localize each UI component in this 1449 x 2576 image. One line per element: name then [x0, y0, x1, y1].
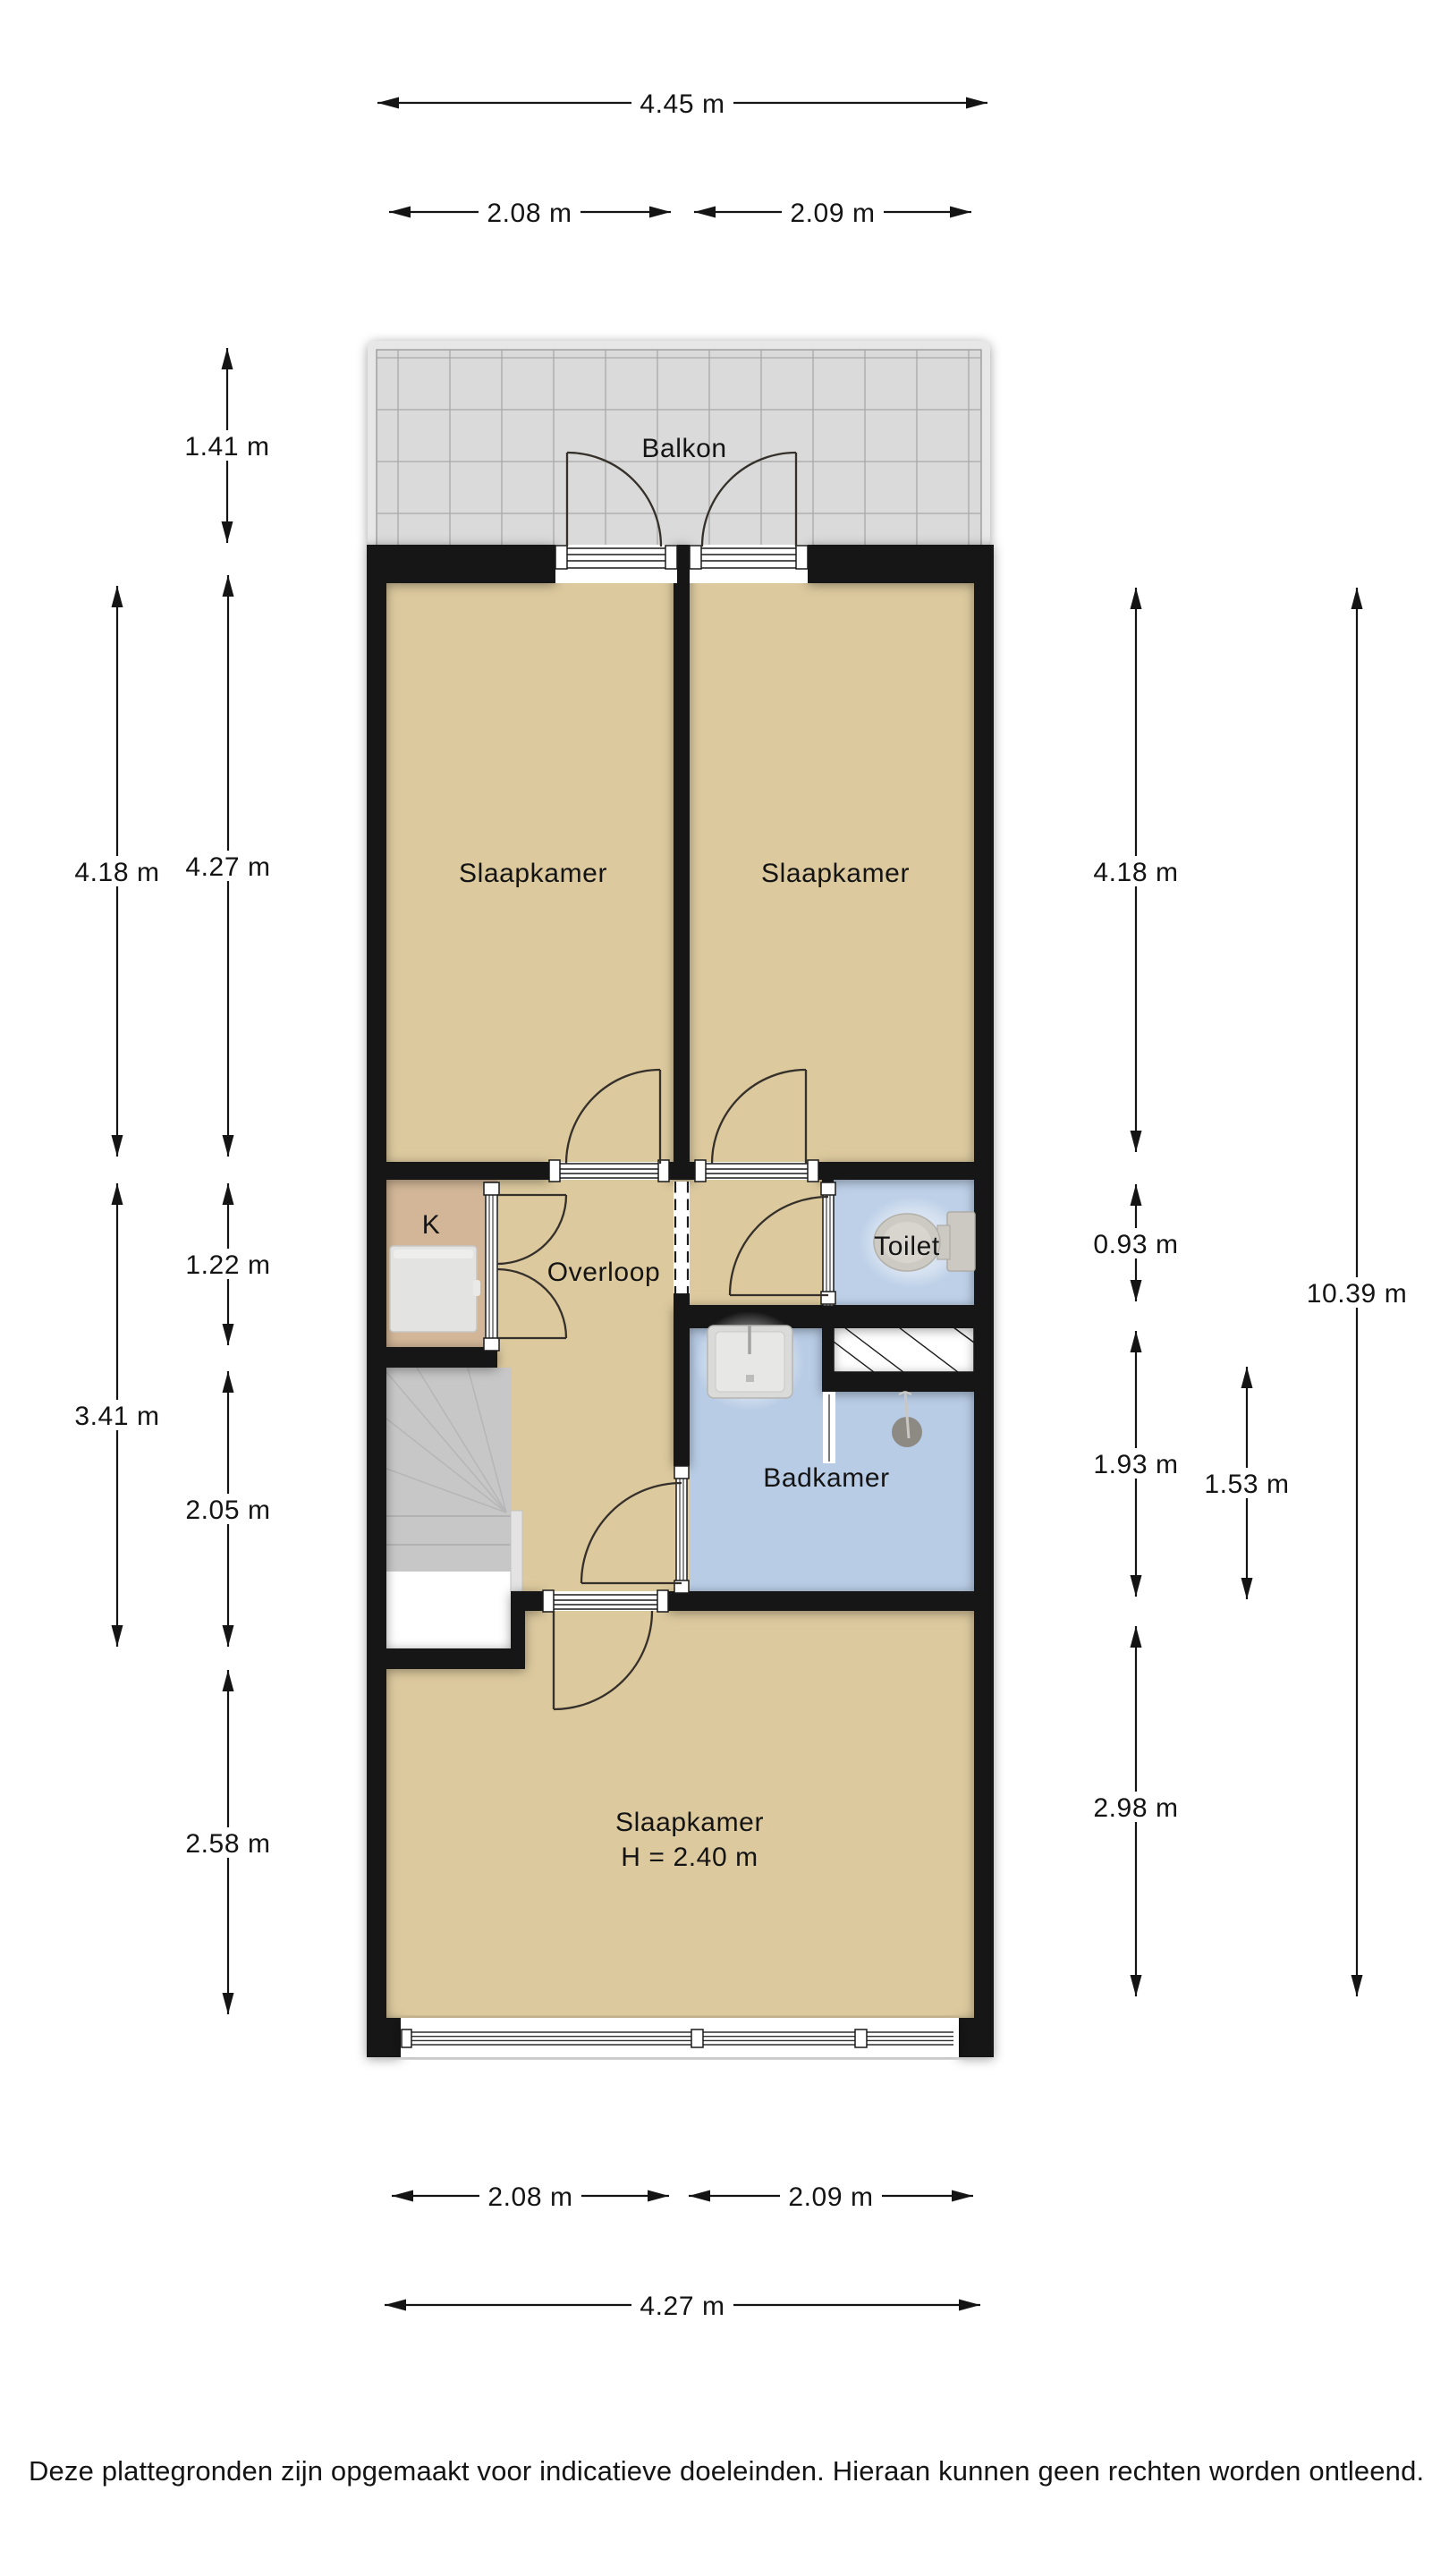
svg-text:2.08 m: 2.08 m [487, 199, 572, 228]
svg-text:K: K [422, 1210, 441, 1240]
svg-text:4.27 m: 4.27 m [640, 2292, 724, 2321]
svg-text:Overloop: Overloop [547, 1258, 661, 1287]
svg-text:3.41 m: 3.41 m [74, 1402, 159, 1431]
svg-text:2.09 m: 2.09 m [790, 199, 875, 228]
svg-text:4.18 m: 4.18 m [1093, 858, 1178, 887]
svg-text:Deze plattegronden zijn opgema: Deze plattegronden zijn opgemaakt voor i… [29, 2455, 1424, 2487]
svg-text:H = 2.40 m: H = 2.40 m [621, 1843, 758, 1872]
svg-text:4.18 m: 4.18 m [74, 858, 159, 887]
svg-text:Slaapkamer: Slaapkamer [761, 859, 910, 888]
svg-text:Slaapkamer: Slaapkamer [459, 859, 607, 888]
svg-text:Badkamer: Badkamer [763, 1463, 890, 1493]
svg-text:2.58 m: 2.58 m [185, 1829, 270, 1859]
svg-text:2.98 m: 2.98 m [1093, 1793, 1178, 1823]
svg-text:Slaapkamer: Slaapkamer [615, 1808, 764, 1837]
svg-text:4.45 m: 4.45 m [640, 89, 724, 119]
svg-text:2.05 m: 2.05 m [185, 1496, 270, 1525]
svg-text:1.93 m: 1.93 m [1093, 1450, 1178, 1479]
svg-text:1.22 m: 1.22 m [185, 1250, 270, 1280]
svg-text:2.09 m: 2.09 m [788, 2182, 873, 2212]
svg-text:Toilet: Toilet [874, 1232, 940, 1261]
svg-text:2.08 m: 2.08 m [487, 2182, 572, 2212]
svg-text:1.53 m: 1.53 m [1204, 1470, 1289, 1499]
svg-text:0.93 m: 0.93 m [1093, 1230, 1178, 1259]
svg-text:Balkon: Balkon [641, 434, 726, 463]
svg-text:4.27 m: 4.27 m [185, 852, 270, 882]
svg-text:10.39 m: 10.39 m [1307, 1279, 1408, 1309]
svg-text:1.41 m: 1.41 m [184, 432, 269, 462]
